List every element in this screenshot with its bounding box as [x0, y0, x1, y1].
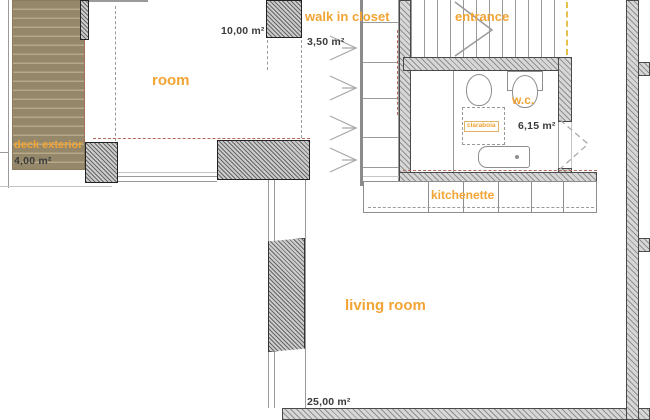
- room-top-wall-line: [86, 0, 148, 2]
- outer-wall-stub-mid: [638, 238, 650, 252]
- room-wall-stub: [80, 0, 89, 40]
- window-glass-line-1: [118, 176, 217, 177]
- site-boundary-line-bottom: [0, 186, 112, 187]
- wall-pillar-c: [266, 0, 302, 38]
- deck-area: 4,00 m²: [14, 156, 52, 167]
- kitchen-counter-back-line: [363, 176, 399, 177]
- closet-dashed-boundary-left: [267, 40, 268, 70]
- site-boundary-line-tick: [0, 152, 9, 153]
- toilet-icon: [466, 74, 492, 106]
- closet-shelf-line: [363, 62, 398, 63]
- wc-wall-right-upper: [558, 57, 572, 122]
- counter-overhang-dashed-line: [368, 207, 594, 208]
- closet-shelf-line: [363, 98, 398, 99]
- closet-label: walk in closet: [305, 10, 390, 23]
- kitchenette-label: kitchenette: [431, 189, 494, 201]
- closet-cabinet: [363, 0, 399, 184]
- bathtub-icon: [478, 146, 530, 168]
- window-outer-line: [118, 172, 217, 173]
- wc-door-jamb-outer: [571, 122, 572, 170]
- wc-wall-left: [399, 0, 411, 184]
- door-swing-icon: [560, 120, 588, 169]
- skylight-label: claraboia: [464, 121, 499, 132]
- room-area: 10,00 m²: [221, 26, 265, 37]
- wc-label: w.c.: [512, 94, 534, 106]
- living-room-area: 25,00 m²: [307, 397, 351, 408]
- kitchen-wall-face-dashed-line: [403, 170, 597, 171]
- closet-shelf-line: [363, 167, 398, 168]
- living-room-label: living room: [345, 298, 426, 313]
- entrance-label: entrance: [455, 10, 509, 23]
- room-dashed-boundary: [115, 6, 116, 146]
- bathtub-drain-dot: [515, 155, 519, 159]
- window-glass-line-2: [118, 181, 217, 182]
- outer-wall-stub-top: [638, 62, 650, 76]
- room-label: room: [152, 73, 190, 88]
- wc-wall-face-dashed-line: [397, 30, 398, 115]
- wc-door-jamb-inner: [558, 122, 559, 170]
- wall-pillar-a: [85, 142, 118, 183]
- closet-hanger-icons: [330, 36, 356, 172]
- closet-area: 3,50 m²: [307, 37, 345, 48]
- outer-wall-bottom: [282, 408, 650, 420]
- deck-label: deck exterior: [14, 140, 82, 151]
- wc-wall-top: [403, 57, 572, 71]
- living-wall-line-3: [305, 180, 306, 408]
- wc-area: 6,15 m²: [518, 121, 556, 132]
- wall-pillar-b: [217, 140, 310, 180]
- living-wall-panel: [268, 238, 305, 352]
- floor-plan: claraboia deck exterior 4,00 m²: [0, 0, 650, 420]
- wc-partition-line: [453, 71, 454, 172]
- entrance-threshold-dashed-line: [566, 2, 568, 55]
- site-boundary-line-left: [8, 0, 9, 188]
- closet-shelf-line: [363, 137, 398, 138]
- room-bottom-dashed-line: [93, 138, 310, 139]
- closet-dashed-boundary-right: [301, 40, 302, 138]
